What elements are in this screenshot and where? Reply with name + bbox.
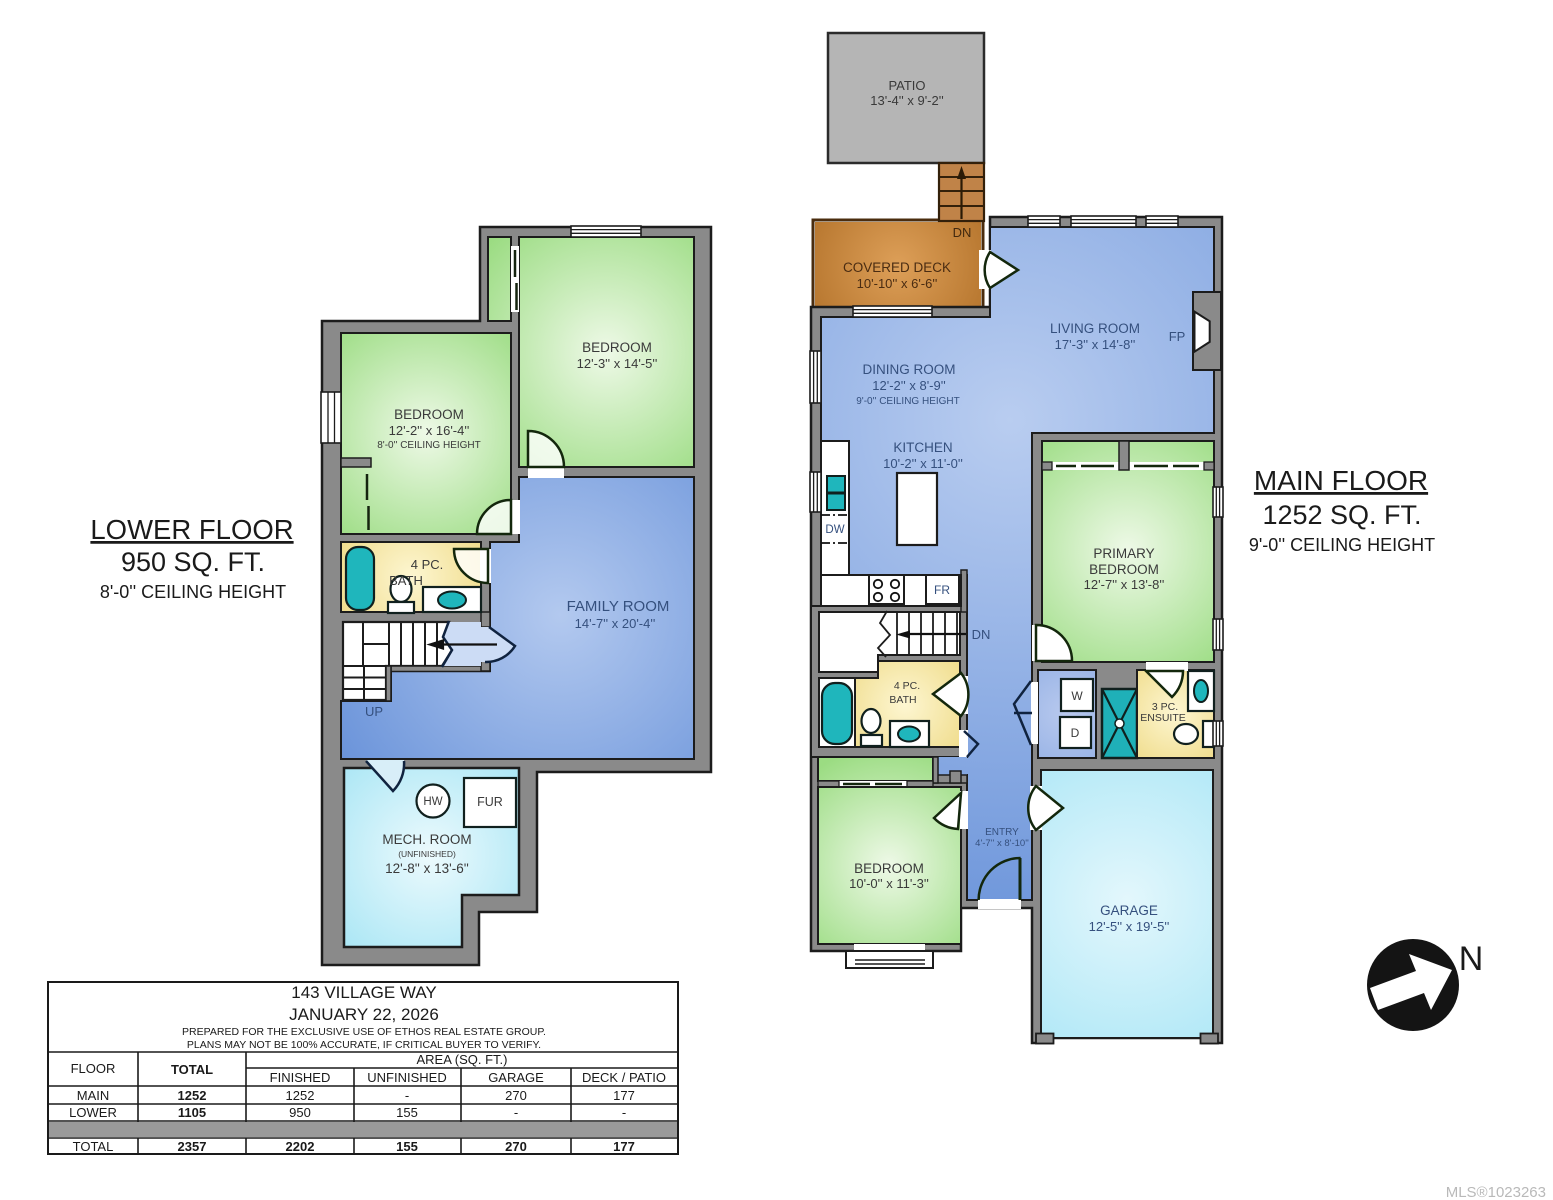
svg-text:143 VILLAGE WAY: 143 VILLAGE WAY [291,983,437,1002]
svg-text:DN: DN [953,225,972,240]
svg-text:DW: DW [825,524,844,536]
svg-text:-: - [514,1105,518,1120]
svg-text:LIVING ROOM: LIVING ROOM [1050,321,1140,336]
svg-text:1252: 1252 [178,1088,207,1103]
svg-text:ENSUITE: ENSUITE [1140,712,1186,724]
svg-text:LOWER FLOOR: LOWER FLOOR [90,514,293,545]
svg-text:270: 270 [505,1139,527,1154]
svg-text:950: 950 [289,1105,311,1120]
svg-text:UP: UP [365,704,383,719]
svg-text:PRIMARY: PRIMARY [1093,546,1154,561]
svg-text:JANUARY 22, 2026: JANUARY 22, 2026 [289,1005,439,1024]
svg-text:TOTAL: TOTAL [73,1139,114,1154]
svg-text:4 PC.: 4 PC. [411,557,444,572]
svg-text:W: W [1071,689,1083,703]
svg-text:155: 155 [396,1105,418,1120]
svg-text:KITCHEN: KITCHEN [893,440,952,455]
svg-text:COVERED DECK: COVERED DECK [843,260,951,275]
svg-text:10'-10'' x 6'-6'': 10'-10'' x 6'-6'' [857,276,938,291]
svg-text:TOTAL: TOTAL [171,1062,213,1077]
svg-text:BEDROOM: BEDROOM [582,340,652,355]
svg-text:12'-2'' x 16'-4'': 12'-2'' x 16'-4'' [389,423,470,438]
svg-text:177: 177 [613,1088,635,1103]
svg-text:155: 155 [396,1139,418,1154]
svg-text:MAIN: MAIN [77,1088,110,1103]
svg-text:PREPARED FOR THE EXCLUSIVE USE: PREPARED FOR THE EXCLUSIVE USE OF ETHOS … [182,1026,546,1038]
svg-text:BATH: BATH [889,694,916,706]
svg-text:(UNFINISHED): (UNFINISHED) [398,849,456,859]
svg-text:AREA (SQ. FT.): AREA (SQ. FT.) [416,1052,507,1067]
svg-text:4'-7'' x 8'-10'': 4'-7'' x 8'-10'' [975,838,1029,849]
svg-text:FLOOR: FLOOR [71,1061,116,1076]
svg-text:GARAGE: GARAGE [488,1070,544,1085]
svg-text:BEDROOM: BEDROOM [1089,562,1159,577]
svg-text:GARAGE: GARAGE [1100,903,1158,918]
svg-text:MAIN FLOOR: MAIN FLOOR [1254,465,1428,496]
svg-text:DN: DN [972,627,991,642]
svg-text:FP: FP [1169,329,1186,344]
svg-text:FAMILY ROOM: FAMILY ROOM [567,598,670,615]
svg-text:FUR: FUR [477,795,503,809]
svg-text:FR: FR [934,583,950,597]
svg-text:ENTRY: ENTRY [985,827,1019,838]
svg-text:BEDROOM: BEDROOM [394,407,464,422]
svg-text:N: N [1459,940,1484,978]
svg-text:12'-7'' x 13'-8'': 12'-7'' x 13'-8'' [1084,577,1165,592]
svg-text:8'-0'' CEILING HEIGHT: 8'-0'' CEILING HEIGHT [377,440,481,451]
svg-text:8'-0'' CEILING HEIGHT: 8'-0'' CEILING HEIGHT [100,582,286,602]
svg-text:DINING ROOM: DINING ROOM [863,362,956,377]
svg-text:12'-3'' x 14'-5'': 12'-3'' x 14'-5'' [577,356,658,371]
svg-text:10'-0'' x 11'-3'': 10'-0'' x 11'-3'' [849,876,929,891]
svg-text:4 PC.: 4 PC. [894,680,920,692]
svg-text:1105: 1105 [178,1105,206,1120]
svg-text:PATIO: PATIO [888,78,925,93]
svg-text:UNFINISHED: UNFINISHED [367,1070,446,1085]
svg-text:DECK / PATIO: DECK / PATIO [582,1070,666,1085]
svg-text:12'-5'' x 19'-5'': 12'-5'' x 19'-5'' [1089,919,1170,934]
svg-text:1252 SQ. FT.: 1252 SQ. FT. [1262,500,1421,530]
svg-text:12'-8'' x 13'-6'': 12'-8'' x 13'-6'' [385,861,469,876]
svg-text:270: 270 [505,1088,527,1103]
svg-text:BEDROOM: BEDROOM [854,861,924,876]
svg-text:MECH. ROOM: MECH. ROOM [382,832,471,847]
svg-text:9'-0'' CEILING HEIGHT: 9'-0'' CEILING HEIGHT [856,396,960,407]
svg-text:9'-0'' CEILING HEIGHT: 9'-0'' CEILING HEIGHT [1249,535,1435,555]
svg-text:D: D [1071,726,1080,740]
svg-text:950 SQ. FT.: 950 SQ. FT. [121,547,265,577]
svg-text:177: 177 [613,1139,635,1154]
svg-text:13'-4'' x 9'-2'': 13'-4'' x 9'-2'' [870,93,943,108]
svg-text:BATH: BATH [389,573,423,588]
svg-text:LOWER: LOWER [69,1105,117,1120]
svg-text:2202: 2202 [286,1139,315,1154]
svg-text:FINISHED: FINISHED [270,1070,331,1085]
svg-text:17'-3'' x 14'-8'': 17'-3'' x 14'-8'' [1055,337,1136,352]
svg-text:1252: 1252 [286,1088,315,1103]
svg-text:-: - [405,1088,409,1103]
svg-text:12'-2'' x 8'-9'': 12'-2'' x 8'-9'' [872,378,945,393]
svg-text:MLS®1023263: MLS®1023263 [1446,1184,1546,1200]
svg-text:HW: HW [423,796,442,808]
svg-text:10'-2'' x 11'-0'': 10'-2'' x 11'-0'' [883,456,963,471]
svg-text:2357: 2357 [178,1139,207,1154]
svg-text:-: - [622,1105,626,1120]
svg-text:14'-7'' x 20'-4'': 14'-7'' x 20'-4'' [575,616,656,631]
svg-text:PLANS MAY NOT BE 100% ACCURATE: PLANS MAY NOT BE 100% ACCURATE, IF CRITI… [187,1039,541,1051]
